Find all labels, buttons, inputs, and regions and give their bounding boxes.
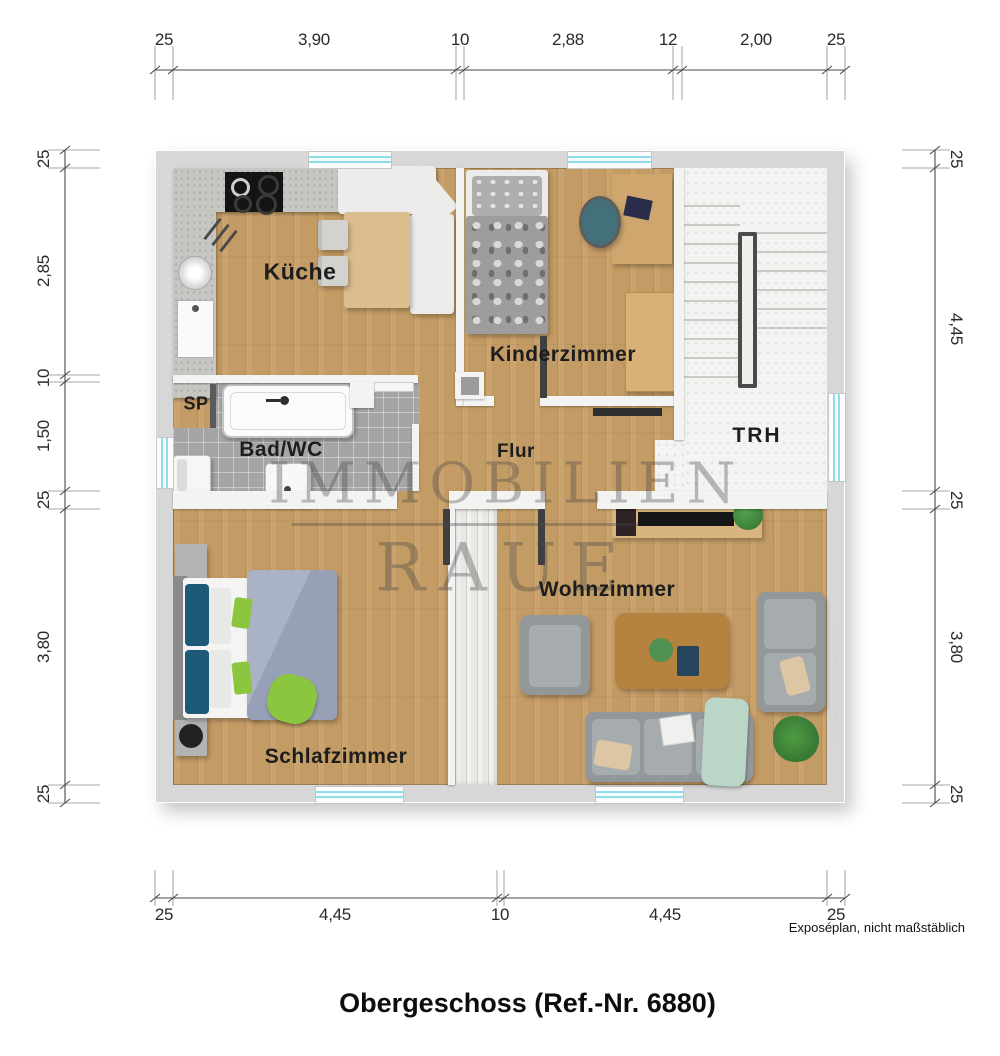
stair-treads-left [684, 205, 740, 388]
wall-kinderzimmer-bottom-b [540, 396, 676, 406]
window-wohnzimmer [595, 786, 684, 804]
burner-icon [256, 194, 277, 215]
shaft [461, 377, 479, 395]
window-bathroom [156, 437, 174, 489]
window-kinderzimmer [567, 151, 652, 169]
room-label-kueche: Küche [264, 259, 337, 286]
window-kitchen [308, 151, 392, 169]
pillow-white [209, 588, 231, 644]
room-label-trh: TRH [732, 424, 781, 448]
room-label-kinderzimmer: Kinderzimmer [490, 343, 636, 367]
wall-stairwell [674, 168, 684, 440]
table-plant [649, 638, 673, 662]
floorplan-page: 25 3,90 10 2,88 12 2,00 25 25 4,45 10 4,… [0, 0, 1000, 1056]
tray [179, 724, 203, 748]
burner-icon [258, 175, 279, 196]
sofa-cushion [764, 599, 816, 649]
room-label-flur: Flur [497, 441, 535, 463]
bathtub-drain-icon [280, 396, 289, 405]
stair-treads-right [756, 232, 827, 335]
illustration-credit: Illustration©ImmoGrafik [830, 624, 842, 745]
room-label-sp: SP [183, 394, 208, 415]
desk-chair [579, 196, 621, 248]
kitchen-sink [177, 300, 214, 358]
armchair [520, 615, 590, 695]
floor-plant [773, 716, 819, 762]
pillow-blue [185, 584, 209, 646]
cooktop [225, 172, 283, 212]
bed-duvet [466, 216, 548, 334]
toilet-tank [177, 459, 187, 491]
wall-kitchen-kinderzimmer [456, 168, 464, 406]
burner-icon [234, 195, 252, 213]
window-stairwell [828, 393, 846, 482]
bathroom-door [374, 382, 414, 392]
faucet-icon [192, 305, 199, 312]
pillow-blue [185, 650, 209, 714]
dining-table [344, 212, 410, 308]
tablet [677, 646, 699, 676]
window-schlafzimmer [315, 786, 404, 804]
room-label-bad: Bad/WC [239, 438, 323, 462]
dresser [625, 292, 675, 392]
armchair-seat [529, 625, 581, 687]
coffee-table [615, 613, 729, 689]
watermark-rule [292, 523, 638, 526]
room-label-schlafzimmer: Schlafzimmer [265, 745, 408, 769]
disclaimer: Exposéplan, nicht maßstäblich [640, 920, 965, 935]
bathtub-faucet-icon [266, 399, 280, 402]
dining-bench-right [410, 214, 454, 314]
bathtub [222, 384, 354, 438]
book [659, 714, 695, 746]
cushion-green [231, 661, 252, 695]
room-label-wohnzimmer: Wohnzimmer [539, 578, 675, 602]
chair [318, 220, 348, 250]
stair-railing [738, 232, 757, 388]
bed-pillow [472, 176, 542, 216]
pillow-white [209, 650, 231, 708]
dish-stack [178, 256, 212, 290]
wall-bath-stub [350, 382, 374, 408]
throw-mint [701, 697, 750, 787]
sp-sliding-door [210, 384, 216, 428]
page-title: Obergeschoss (Ref.-Nr. 6880) [185, 988, 870, 1019]
hall-sideboard [593, 408, 662, 416]
